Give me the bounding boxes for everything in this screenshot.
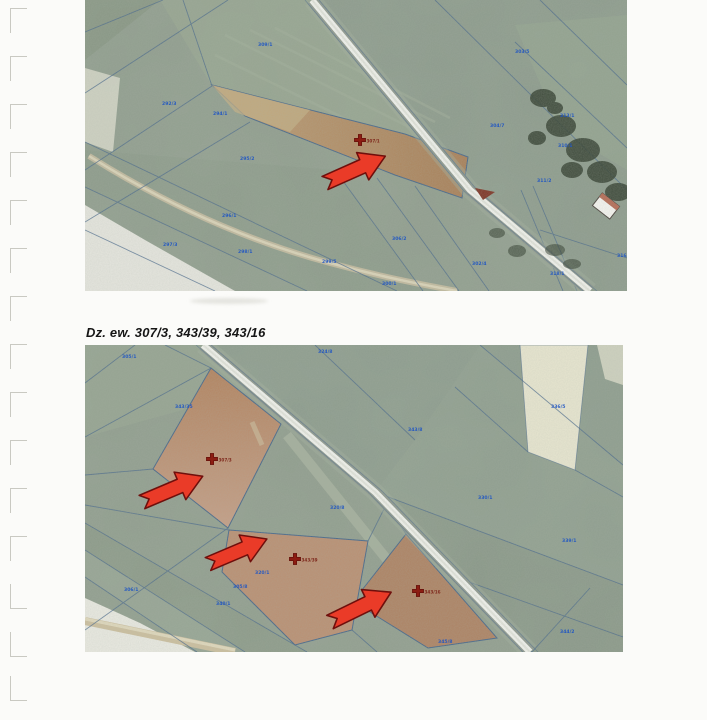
parcel-number: 297/3 (163, 242, 177, 248)
binding-mark (10, 536, 27, 561)
marker-parcel-number: 343/39 (302, 558, 318, 563)
parcel-number: 345/8 (438, 639, 452, 645)
parcel-number: 336/5 (551, 404, 565, 410)
binding-mark (10, 248, 27, 273)
scan-smudge (190, 298, 268, 304)
binding-mark (10, 440, 27, 465)
parcel-number: 339/1 (562, 538, 576, 544)
parcel-number: 302/4 (472, 261, 486, 267)
binding-mark (10, 296, 27, 321)
bottom-map: 305/1324/8343/35343/8336/5330/1339/1320/… (85, 345, 623, 652)
parcel-number: 305/1 (122, 354, 136, 360)
parcel-number: 310/1 (558, 143, 572, 149)
parcel-number: 313/1 (560, 113, 574, 119)
parcel-number: 305/8 (233, 584, 247, 590)
parcel-number: 320/1 (255, 570, 269, 576)
binding-mark (10, 200, 27, 225)
parcel-number: 330/1 (478, 495, 492, 501)
parcel-number: 344/2 (560, 629, 574, 635)
parcel-number: 318/1 (550, 271, 564, 277)
parcel-number: 306/1 (124, 587, 138, 593)
binding-mark (10, 676, 27, 701)
marker-parcel-number: 307/1 (367, 139, 380, 144)
binding-mark (10, 8, 27, 33)
caption-parcel-numbers: Dz. ew. 307/3, 343/39, 343/16 (86, 325, 266, 340)
binding-mark (10, 344, 27, 369)
parcel-number: 343/8 (408, 427, 422, 433)
parcel-number: 324/8 (318, 349, 332, 355)
binding-mark (10, 632, 27, 657)
top-map: 309/1294/1292/3295/2296/1297/3298/1299/5… (85, 0, 627, 291)
parcel-number: 306/2 (392, 236, 406, 242)
binding-mark (10, 104, 27, 129)
parcel-number: 299/5 (322, 259, 336, 265)
marker-parcel-number: 307/3 (219, 458, 232, 463)
parcel-number: 295/2 (240, 156, 254, 162)
binding-mark (10, 56, 27, 81)
parcel-number: 292/3 (162, 101, 176, 107)
parcel-number: 320/8 (330, 505, 344, 511)
parcel-number: 296/1 (222, 213, 236, 219)
top-map-image: 309/1294/1292/3295/2296/1297/3298/1299/5… (85, 0, 627, 291)
binding-mark (10, 584, 27, 609)
parcel-number: 309/1 (258, 42, 272, 48)
parcel-number: 300/1 (382, 281, 396, 287)
binding-mark (10, 392, 27, 417)
parcel-number: 316/1 (617, 253, 627, 259)
marker-parcel-number: 343/16 (425, 590, 441, 595)
parcel-number: 340/1 (216, 601, 230, 607)
parcel-number: 303/5 (515, 49, 529, 55)
bottom-map-image: 305/1324/8343/35343/8336/5330/1339/1320/… (85, 345, 623, 652)
parcel-number: 343/35 (175, 404, 193, 410)
parcel-number: 311/2 (537, 178, 551, 184)
parcel-number: 298/1 (238, 249, 252, 255)
parcel-number: 304/7 (490, 123, 504, 129)
binding-mark (10, 488, 27, 513)
binding-mark (10, 152, 27, 177)
parcel-number: 294/1 (213, 111, 227, 117)
